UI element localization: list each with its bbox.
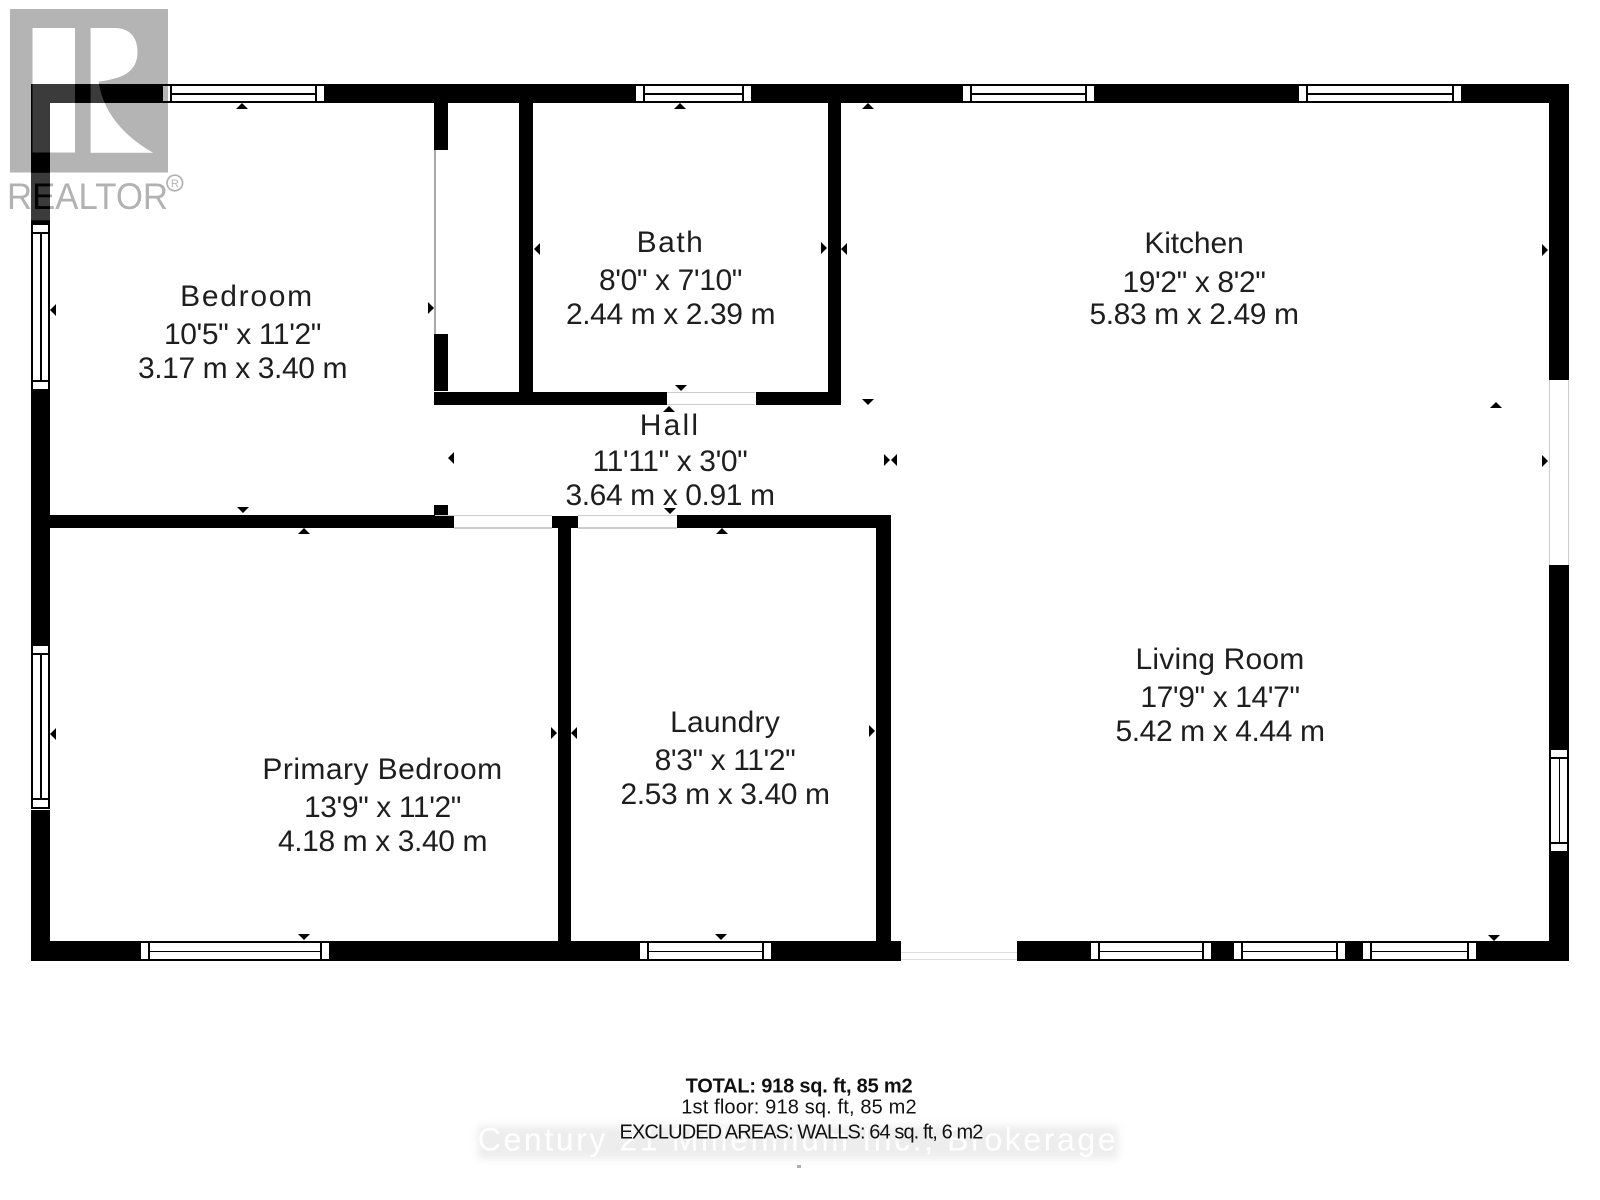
svg-text:R: R — [171, 178, 179, 190]
svg-text:REALTOR: REALTOR — [7, 176, 168, 217]
